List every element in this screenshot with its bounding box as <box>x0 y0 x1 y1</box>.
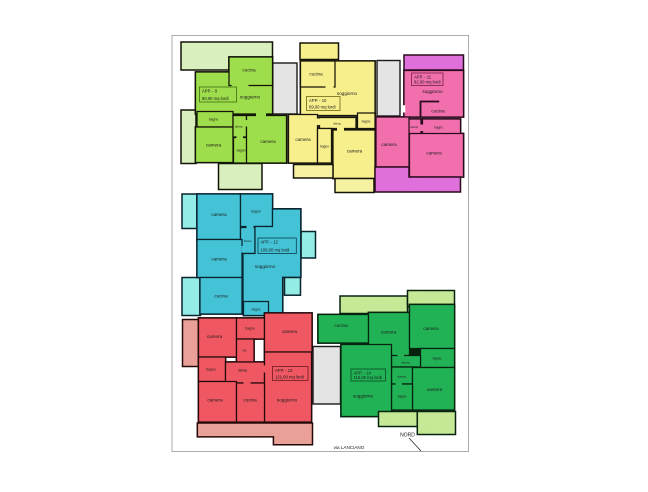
svg-text:disimp.: disimp. <box>238 369 248 373</box>
svg-text:camera: camera <box>295 137 311 142</box>
svg-text:wc: wc <box>243 349 247 353</box>
svg-text:camera: camera <box>347 149 363 154</box>
svg-text:69,00 mq lordi: 69,00 mq lordi <box>309 104 336 109</box>
svg-text:APP. - 9: APP. - 9 <box>202 88 218 93</box>
svg-text:camera: camera <box>381 330 397 335</box>
svg-text:disimp: disimp <box>235 125 243 129</box>
svg-text:bagno: bagno <box>252 308 261 312</box>
svg-text:camera: camera <box>206 143 222 148</box>
svg-text:soggiorno: soggiorno <box>353 394 374 399</box>
svg-text:109,00 mq lordi: 109,00 mq lordi <box>261 247 290 252</box>
svg-text:bagno: bagno <box>320 145 329 149</box>
svg-text:camera: camera <box>211 257 227 262</box>
svg-text:camera: camera <box>260 139 276 144</box>
svg-text:camera: camera <box>282 329 298 334</box>
svg-text:camera: camera <box>207 398 223 403</box>
svg-text:disimp: disimp <box>410 125 418 129</box>
svg-text:APP. - 10: APP. - 10 <box>309 98 327 103</box>
svg-text:via LANCIANO: via LANCIANO <box>334 445 365 450</box>
svg-text:bagno: bagno <box>433 357 442 361</box>
svg-text:cucina: cucina <box>242 68 256 73</box>
svg-text:soggiorno: soggiorno <box>422 89 443 94</box>
svg-text:bagno: bagno <box>398 395 407 399</box>
svg-text:bagno: bagno <box>245 327 255 331</box>
svg-text:camera: camera <box>381 142 397 147</box>
svg-text:cucina: cucina <box>214 294 228 299</box>
svg-text:bagno: bagno <box>237 149 246 153</box>
svg-text:bagno: bagno <box>209 118 219 122</box>
svg-text:80,00 mq lordi: 80,00 mq lordi <box>202 96 229 101</box>
svg-text:82,00 mq lordi: 82,00 mq lordi <box>414 79 441 84</box>
svg-text:NORD: NORD <box>400 433 415 439</box>
svg-text:disimp.: disimp. <box>401 361 411 365</box>
svg-text:camera: camera <box>211 212 227 217</box>
svg-text:soggiorno: soggiorno <box>277 398 298 403</box>
svg-text:soggiorno: soggiorno <box>337 91 358 96</box>
svg-text:soggiorno: soggiorno <box>255 264 276 269</box>
svg-text:camera: camera <box>207 334 223 339</box>
svg-text:bagno: bagno <box>362 120 371 124</box>
svg-text:115,00 mq lordi: 115,00 mq lordi <box>354 375 383 380</box>
svg-text:disimp.: disimp. <box>333 122 342 126</box>
svg-text:cucina: cucina <box>431 109 445 114</box>
svg-text:disimp.: disimp. <box>397 375 407 379</box>
svg-text:disimp: disimp <box>244 239 252 243</box>
svg-text:camera: camera <box>423 326 439 331</box>
svg-text:cucina: cucina <box>334 323 348 328</box>
svg-text:APP. - 12: APP. - 12 <box>261 239 279 244</box>
svg-text:soggiorno: soggiorno <box>240 95 261 100</box>
svg-text:camera: camera <box>427 387 443 392</box>
svg-text:camera: camera <box>426 151 442 156</box>
svg-text:bagno: bagno <box>206 368 216 372</box>
svg-text:bagno: bagno <box>434 126 443 130</box>
svg-text:cucina: cucina <box>243 398 257 403</box>
svg-text:121,00 mq lordi: 121,00 mq lordi <box>275 374 304 379</box>
svg-text:cucina: cucina <box>309 72 323 77</box>
svg-text:APP. - 13: APP. - 13 <box>275 368 293 373</box>
svg-text:bagno: bagno <box>251 210 261 214</box>
